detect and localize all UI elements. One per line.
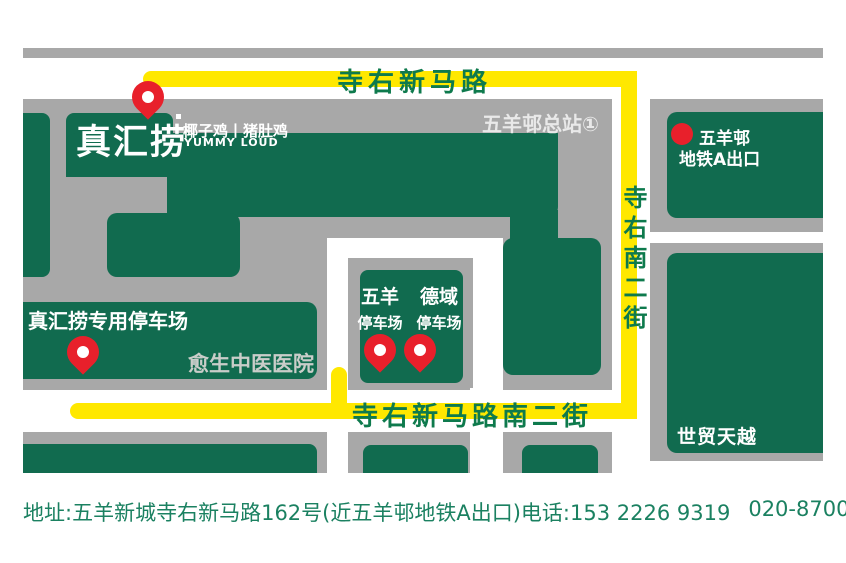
map-canvas: 寺右新马路 寺右南二街 寺右新马路南二街 真汇捞 椰子鸡丨猪肚鸡 YUMMY L… xyxy=(0,0,846,563)
own-parking-label: 真汇捞专用停车场 xyxy=(28,305,188,334)
mall-label: 世贸天越 xyxy=(677,422,757,449)
deyu-parking-label: 德域 停车场 xyxy=(411,282,467,333)
block-stub-middle xyxy=(363,445,468,473)
block-stub-left xyxy=(23,444,317,473)
metro-exit-label-line2: 地铁A出口 xyxy=(679,145,760,170)
wuyang-parking-sub: 停车场 xyxy=(353,312,407,333)
block-lower-lobe xyxy=(107,213,240,277)
road-mid-vertical-left xyxy=(327,238,348,473)
block-left-sliver xyxy=(23,113,50,277)
gap-right-column-top xyxy=(650,232,823,243)
bottom-road-label: 寺右新马路南二街 xyxy=(352,396,592,433)
address-line: 地址:五羊新城寺右新马路162号(近五羊邨地铁A出口) xyxy=(23,497,521,527)
address-value: 五羊新城寺右新马路162号(近五羊邨地铁A出口) xyxy=(72,501,521,525)
trademark-dot xyxy=(176,114,181,119)
gap-right-column-bottom xyxy=(650,461,823,473)
route-parking-stub xyxy=(331,367,347,419)
right-road-label: 寺右南二街 xyxy=(616,185,651,335)
caption-bar: 地址:五羊新城寺右新马路162号(近五羊邨地铁A出口) 电话:153 2226 … xyxy=(23,497,820,527)
block-connector xyxy=(510,210,558,240)
phone2-value: 020-8700 6219 xyxy=(748,497,846,527)
hospital-label: 愈生中医医院 xyxy=(188,348,314,378)
road-mid-vertical-right xyxy=(470,238,503,473)
wuyang-parking-name: 五羊 xyxy=(353,282,407,309)
metro-exit-dot-icon xyxy=(671,123,693,145)
phone-group: 电话:153 2226 9319 xyxy=(521,497,730,527)
wuyang-parking-label: 五羊 停车场 xyxy=(353,282,407,333)
deyu-parking-sub: 停车场 xyxy=(411,312,467,333)
logo-latin: YUMMY LOUD xyxy=(184,136,279,149)
block-stub-right xyxy=(522,445,598,473)
deyu-parking-name: 德域 xyxy=(411,282,467,309)
road-mid-horizontal xyxy=(327,238,503,258)
phone-line: 电话:153 2226 9319 020-8700 6219 xyxy=(521,497,846,527)
top-road-label: 寺右新马路 xyxy=(337,62,492,99)
address-label: 地址: xyxy=(23,501,72,525)
logo-name: 真汇捞 xyxy=(76,114,187,165)
block-southeast xyxy=(503,238,601,375)
bus-terminus-label: 五羊邨总站① xyxy=(482,108,599,137)
phone1-value: 153 2226 9319 xyxy=(570,501,730,525)
phone-label: 电话: xyxy=(521,501,570,525)
